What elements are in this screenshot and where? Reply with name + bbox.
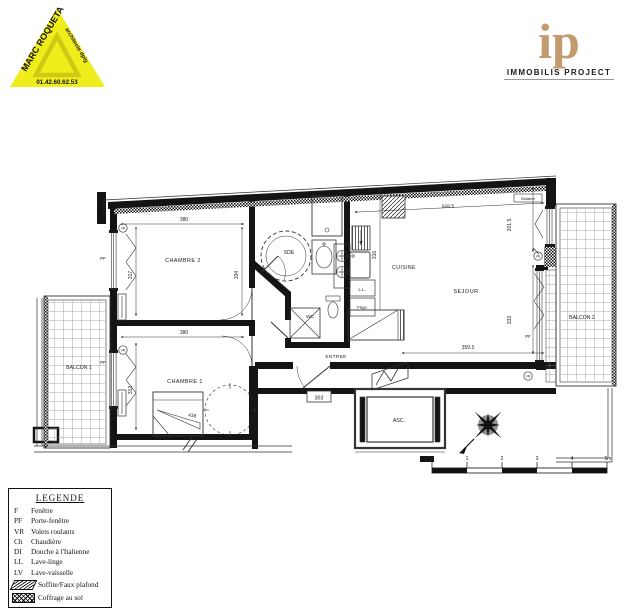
dim-chambre1-diag: 438 (188, 412, 197, 419)
architect-logo: MARC ROQUETA architecte dplg 01.42.60.62… (6, 4, 112, 92)
dim-chambre2-left: 317 (128, 271, 134, 280)
legend-label: Chaudière (31, 537, 111, 547)
sejour-south-wall (330, 362, 556, 369)
compass-rose (459, 412, 501, 454)
vr-label: VR (121, 349, 126, 353)
legend-row-soffite: Soffite/Faux plafond (9, 578, 111, 591)
exterior-walls (34, 178, 556, 462)
coffrage-hatch-icon (12, 593, 35, 603)
legend-label: Coffrage au sol (38, 591, 111, 604)
scale-tick-1: 1 (466, 456, 469, 462)
legend-abbr: LV (14, 568, 31, 578)
scale-tick-0: 0 (431, 456, 434, 462)
balcon2-floor (561, 209, 611, 381)
dim-sejour-top: 559.5 (442, 204, 455, 210)
room-sde: SDE (284, 250, 295, 256)
legend-title: LEGENDE (9, 493, 111, 503)
linework (34, 176, 612, 462)
dim-sejour-bottom: 359.5 (462, 345, 475, 351)
architect-phone: 01.42.60.62.53 (36, 79, 78, 86)
scale-tick-4: 4 (571, 456, 574, 462)
legend-abbr: F (14, 506, 31, 516)
fixture-lavelinge: L.L. (359, 287, 366, 292)
vr-label: VR (121, 227, 126, 231)
room-entree: ENTREE (325, 354, 346, 360)
unit-number: 303 (307, 391, 331, 402)
legend-row-di: DI Douche à l'Italienne (9, 547, 111, 557)
room-sejour: SEJOUR (453, 289, 478, 295)
legend-row-lv: LV Lave-vaisselle (9, 568, 111, 578)
legend-abbr: Ch (14, 537, 31, 547)
legend-label: Lave-vaisselle (31, 568, 111, 578)
legend-abbr: LL (14, 557, 31, 567)
legend-label: Volets roulants (31, 527, 111, 537)
floor-plan-page: MARC ROQUETA architecte dplg 01.42.60.62… (0, 0, 640, 613)
dim-chambre1-width: 380 (180, 330, 189, 336)
legend-label: Lave-linge (31, 557, 111, 567)
legend-row-pf: PF Porte-fenêtre (9, 516, 111, 526)
legend-label: Douche à l'Italienne (31, 547, 111, 557)
legend-label: Soffite/Faux plafond (38, 578, 111, 591)
dim-sejour-right-top: 201.5 (507, 219, 513, 232)
vr-label: VR (536, 255, 541, 259)
unit-number-label: 303 (315, 396, 324, 402)
dim-cuisine-height: 316 (372, 251, 378, 260)
pf-label-left-top: PF (100, 256, 106, 261)
room-balcon2: BALCON 2 (569, 315, 595, 321)
scale-tick-2: 2 (501, 456, 504, 462)
room-chambre2: CHAMBRE 2 (165, 258, 201, 264)
legend-label: Fenêtre (31, 506, 111, 516)
legend-row-ch: Ch Chaudière (9, 537, 111, 547)
legend-row-f: F Fenêtre (9, 506, 111, 516)
floor-plan-drawing: VR VR VR VR 380 317 334 380 312 (0, 140, 640, 490)
legend-row-ll: LL Lave-linge (9, 557, 111, 567)
north-arrow (459, 446, 467, 454)
vr-label: VR (526, 375, 531, 379)
wall-chambres (117, 320, 255, 326)
legend-label: Porte-fenêtre (31, 516, 111, 526)
agency-monogram: ip (504, 18, 614, 66)
agency-logo: ip IMMOBILIS PROJECT (504, 18, 614, 80)
room-asc: ASC. (393, 418, 405, 424)
fixture-radiator: Radiateur (521, 197, 536, 201)
agency-name: IMMOBILIS PROJECT (504, 68, 614, 80)
dim-sejour-right-bot: 333 (507, 316, 513, 325)
dim-chambre1-height: 312 (128, 386, 134, 395)
legend-abbr: VR (14, 527, 31, 537)
pf-label-left-bottom: PF (100, 360, 106, 365)
room-cuisine: CUISINE (392, 265, 416, 271)
room-chambre1: CHAMBRE 1 (167, 379, 203, 385)
facade-stub-topleft (97, 192, 106, 224)
scale-tick-3: 3 (536, 456, 539, 462)
legend-row-vr: VR Volets roulants (9, 527, 111, 537)
balcon1-floor (49, 301, 105, 443)
room-wc: WC (306, 314, 315, 320)
legend-row-coffrage: Coffrage au sol (9, 591, 111, 604)
pf-label-right: PF (525, 334, 531, 339)
soffite-hatch-icon (10, 580, 38, 590)
scale-bar: 0 1 2 3 4 5m (431, 456, 612, 473)
room-balcon1: BALCON 1 (66, 365, 92, 371)
fixture-frigo: Frigo (357, 305, 367, 310)
coffrage-bands (44, 186, 616, 448)
legend-abbr: PF (14, 516, 31, 526)
dim-chambre2-right: 334 (234, 271, 240, 280)
dim-chambre2-width: 380 (180, 217, 189, 223)
scale-tick-5: 5m (605, 456, 612, 462)
legend-abbr: DI (14, 547, 31, 557)
legend-box: LEGENDE F Fenêtre PF Porte-fenêtre VR Vo… (8, 488, 112, 608)
